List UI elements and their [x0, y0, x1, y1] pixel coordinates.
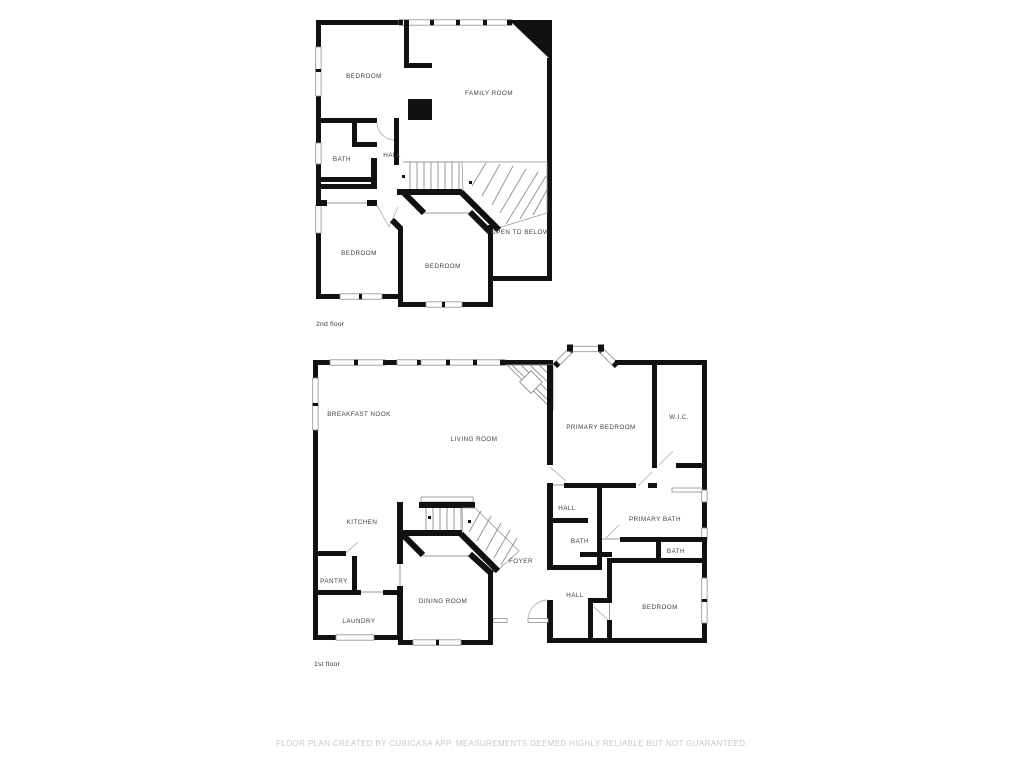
footer-disclaimer: FLOOR PLAN CREATED BY CUBICASA APP. MEAS…	[276, 739, 748, 748]
room-label-primary-bedroom: PRIMARY BEDROOM	[566, 424, 636, 431]
room-label-primary-bath: PRIMARY BATH	[629, 516, 681, 523]
fireplace	[507, 365, 553, 410]
room-label-kitchen: KITCHEN	[347, 519, 378, 526]
room-label-dining-room: DINING ROOM	[419, 598, 467, 605]
window	[316, 205, 321, 233]
door-threshold	[493, 619, 507, 623]
bay-window	[555, 345, 617, 367]
room-label-hall-lower: HALL	[566, 592, 584, 599]
front-door-threshold	[528, 619, 548, 623]
staircase-lower	[397, 497, 519, 571]
room-label-bedroom-left: BEDROOM	[341, 250, 377, 257]
floor-plan-page: BEDROOM FAMILY ROOM BATH HALL BEDROOM BE…	[0, 0, 1024, 768]
window	[336, 635, 374, 640]
room-label-bedroom-top: BEDROOM	[346, 73, 382, 80]
floor-plan-2nd: BEDROOM FAMILY ROOM BATH HALL BEDROOM BE…	[316, 20, 552, 328]
room-label-bath-middle: BATH	[571, 538, 589, 545]
chamfer-corner	[509, 20, 552, 61]
chimney	[408, 99, 432, 120]
floor-plan-1st: BREAKFAST NOOK LIVING ROOM PRIMARY BEDRO…	[313, 345, 707, 669]
floor-label-2nd: 2nd floor	[316, 321, 345, 328]
room-label-laundry: LAUNDRY	[342, 618, 375, 625]
room-label-bath-right: BATH	[667, 548, 685, 555]
room-label-pantry: PANTRY	[320, 578, 348, 585]
room-label-open-to-below: OPEN TO BELOW	[491, 229, 549, 236]
room-label-breakfast-nook: BREAKFAST NOOK	[327, 411, 391, 418]
room-label-wic: W.I.C.	[669, 414, 689, 421]
window	[316, 143, 321, 164]
room-label-bedroom-center: BEDROOM	[425, 263, 461, 270]
room-label-hall-2nd: HALL	[383, 152, 401, 159]
room-label-bath-2nd: BATH	[333, 156, 351, 163]
floor-plan-image: BEDROOM FAMILY ROOM BATH HALL BEDROOM BE…	[0, 0, 1024, 768]
window	[702, 490, 707, 502]
room-label-family-room: FAMILY ROOM	[465, 90, 513, 97]
room-label-bedroom-1st: BEDROOM	[642, 604, 678, 611]
room-label-foyer: FOYER	[509, 558, 533, 565]
floor-label-1st: 1st floor	[314, 661, 341, 668]
room-label-living-room: LIVING ROOM	[451, 436, 498, 443]
staircase-upper	[397, 162, 547, 230]
room-label-hall-upper: HALL	[558, 505, 576, 512]
